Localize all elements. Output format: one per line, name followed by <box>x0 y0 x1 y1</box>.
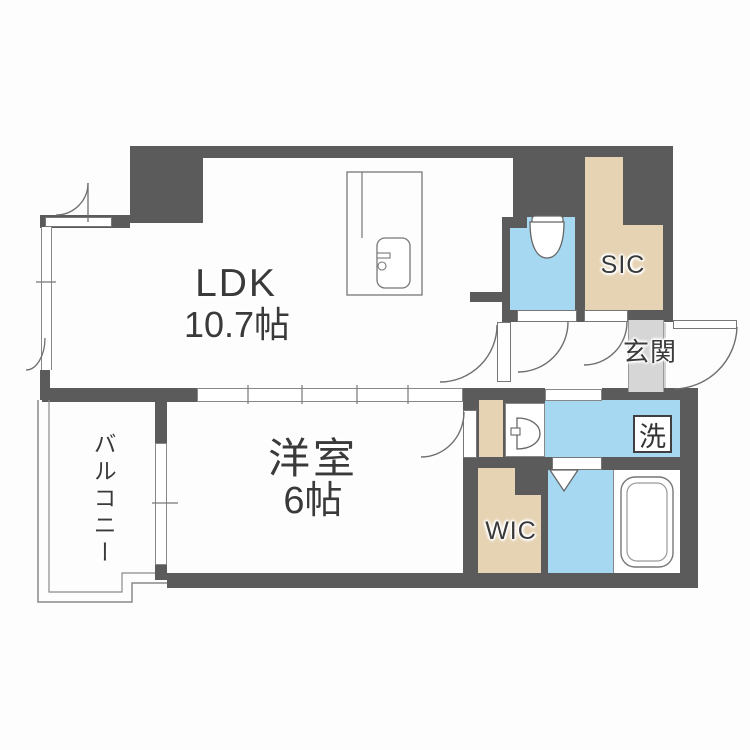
balcony-label: バルコニー <box>91 424 115 574</box>
partition-panel-ticks <box>248 385 408 404</box>
exterior-west-door-arc <box>26 338 45 370</box>
kitchen-counter <box>347 172 422 295</box>
bedroom-size-label: 6帖 <box>233 482 393 522</box>
plan-linework <box>0 0 750 750</box>
sic-label: SIC <box>593 252 653 278</box>
neighbor-door-arc <box>56 183 88 215</box>
ldk-size-label: 10.7帖 <box>157 306 317 344</box>
ldk-door-arc <box>440 325 497 382</box>
toilet-icon <box>530 216 564 258</box>
toilet-door-arc <box>518 322 568 372</box>
entrance-label: 玄関 <box>615 339 685 366</box>
bedroom-door-arc <box>421 412 464 457</box>
wic-label: WIC <box>480 518 542 544</box>
kitchen-faucet-icon <box>377 253 390 258</box>
washbasin-icon <box>511 418 540 449</box>
laundry-box: 洗 <box>633 415 672 453</box>
laundry-label: 洗 <box>639 415 666 454</box>
bathtub-icon <box>621 477 673 567</box>
ldk-label: LDK <box>160 264 312 305</box>
floorplan: LDK 10.7帖 洋室 6帖 バルコニー 玄関 SIC WIC 洗 <box>0 0 750 750</box>
bath-door-triangle <box>550 470 578 491</box>
bedroom-label: 洋室 <box>233 437 393 481</box>
